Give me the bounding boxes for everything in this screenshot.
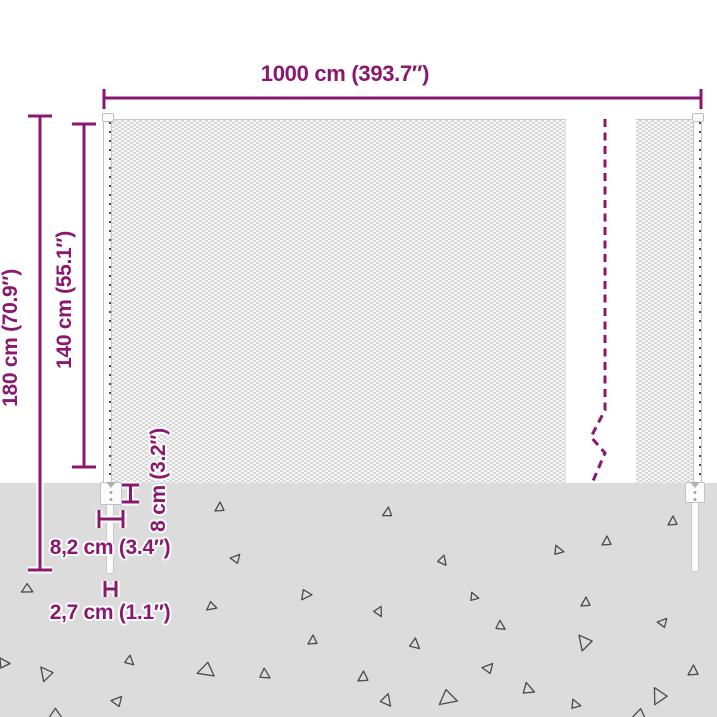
fence-post-right	[693, 119, 702, 483]
product-dimension-diagram: 1000 cm (393.7″) 180 cm (70.9″) 140 cm (…	[0, 0, 717, 717]
fence-mesh-panel-left	[112, 119, 566, 483]
dimension-label-mesh-height: 140 cm (55.1″)	[53, 231, 77, 369]
dimension-label-anchor-width: 8,2 cm (3.4″)	[50, 536, 171, 560]
fence-continuation-dashed-line	[591, 119, 605, 481]
screw-icon	[694, 498, 697, 501]
screw-icon	[110, 491, 113, 494]
ground-anchor-plate-left	[100, 482, 122, 505]
screw-icon	[110, 498, 113, 501]
post-cap-right	[692, 113, 704, 122]
dimension-label-buried-depth: 8 cm (3.2″)	[147, 428, 171, 532]
dimension-label-total-width: 1000 cm (393.7″)	[261, 61, 429, 87]
anchor-notch-icon	[690, 482, 700, 488]
screw-icon	[694, 491, 697, 494]
ground-stake-right	[691, 502, 699, 572]
fence-post-left	[103, 119, 112, 483]
dimension-label-stake-width: 2,7 cm (1.1″)	[50, 601, 171, 625]
anchor-notch-icon	[106, 482, 116, 488]
ground-anchor-plate-right	[685, 482, 705, 503]
post-cap-left	[102, 113, 114, 122]
fence-mesh-panel-right	[636, 119, 700, 483]
dimension-label-total-height: 180 cm (70.9″)	[0, 269, 23, 407]
